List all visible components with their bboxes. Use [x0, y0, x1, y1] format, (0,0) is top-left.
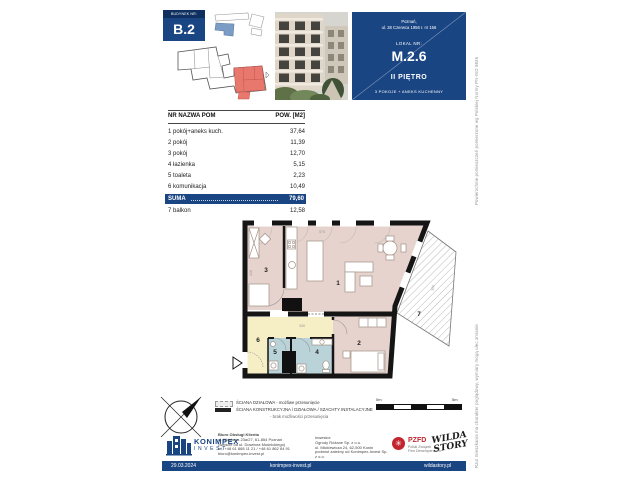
investor-block: Inwestor: Ogrody Różane Sp. z o.o. ul. M… [315, 436, 390, 460]
total-label: SUMA [168, 196, 186, 202]
office-email-link[interactable]: biuro@konimpex-invest.pl [218, 452, 308, 457]
scale-bar [376, 404, 462, 410]
total-value: 79,60 [289, 196, 304, 202]
office-contact-block: Biuro Obsługi Klienta ul. Mostowa 23a/27… [218, 433, 308, 457]
scale-segment [444, 405, 461, 409]
unit-info-box: Poznań, ul. 28 Czerwca 1956 r. nr 156 LO… [352, 12, 466, 100]
column-area: POW. [M2] [275, 113, 305, 119]
wilda-story-logo: WILDA STORY [429, 431, 471, 455]
developer-url-link[interactable]: konimpex-invest.pl [270, 463, 311, 469]
brochure-page: BUDYNEK NR: B.2 [0, 0, 640, 480]
kitchen-island [307, 241, 323, 281]
room-area: 10,49 [290, 184, 305, 190]
building-photo [275, 12, 348, 100]
room-name: 5 toaleta [168, 173, 191, 179]
table-row: 5 toaleta 2,23 [168, 173, 305, 184]
unit-type: 3 POKOJE + ANEKS KUCHENNY [352, 89, 466, 94]
dotted-leader [191, 200, 278, 201]
table-row: 3 pokój 12,70 [168, 151, 305, 162]
column-name: NR NAZWA POM [168, 113, 215, 119]
installation-shaft [282, 298, 302, 311]
room-name: 1 pokój+aneks kuch. [168, 129, 223, 135]
site-building-outline [215, 13, 249, 21]
dimension: 575 [319, 230, 325, 234]
table-row: 4 łazienka 5,15 [168, 162, 305, 173]
wardrobe-2 [359, 318, 386, 327]
site-building-highlighted [215, 23, 234, 36]
room-area: 2,23 [293, 173, 305, 179]
wardrobe [249, 228, 259, 258]
room-name: 7 balkon [168, 208, 191, 214]
room-area: 5,15 [293, 162, 305, 168]
kitchen-counter [286, 227, 297, 289]
legend-note-text: - brak możliwości przesunięcia [270, 414, 328, 419]
pzfd-logo-icon: ✳ [392, 437, 405, 450]
pzfd-name: PZFD [408, 437, 426, 444]
building-number: B.2 [163, 18, 205, 41]
city: Poznań, [352, 19, 466, 24]
project-url-link[interactable]: wildastory.pl [424, 463, 451, 469]
room-name: 6 komunikacja [168, 184, 206, 190]
orientation-marker [266, 72, 269, 78]
room-name: 4 łazienka [168, 162, 195, 168]
address: ul. 28 Czerwca 1956 r. nr 156 [352, 25, 466, 30]
legend-structural-text: ŚCIANA KONSTRUKCYJNA / DZIAŁOWA / SZACHT… [236, 407, 373, 412]
floor-label: II PIĘTRO [352, 74, 466, 81]
investor-line: podmiot zależny od Konimpex-Invest Sp. z… [315, 450, 390, 460]
site-building-outline [251, 28, 262, 36]
highlighted-unit-annex [238, 92, 250, 99]
table-row: 2 pokój 11,39 [168, 140, 305, 151]
entrance-marker [233, 357, 242, 369]
footer-bar: 29.03.2024 konimpex-invest.pl wildastory… [162, 461, 466, 471]
legend-symbol-structural [215, 408, 231, 412]
room-area: 11,39 [290, 140, 305, 146]
disclaimer-bottom: Rzut mieszkania ma charakter poglądowy, … [474, 228, 479, 468]
disclaimer-top: Powierzchnie pomieszczeń pomierzone wg P… [474, 30, 479, 205]
room-label-3: 3 [264, 267, 268, 274]
table-rule [168, 110, 305, 111]
floor-plan: 1 2 3 4 5 6 7 575 345 248 355 [162, 218, 464, 398]
room-label-4: 4 [315, 349, 319, 356]
table-row: 1 pokój+aneks kuch. 37,64 [168, 129, 305, 140]
scale-end-label: 5m [452, 397, 458, 402]
room-label-5: 5 [273, 349, 277, 356]
scale-start-label: 0m [376, 397, 382, 402]
scale-segment [377, 405, 394, 409]
room-label-6: 6 [256, 337, 260, 344]
dimension: 248 [249, 270, 253, 276]
room-area: 37,64 [290, 129, 305, 135]
date: 29.03.2024 [171, 463, 196, 469]
building-number-label: BUDYNEK NR: [163, 10, 205, 18]
table-rule [168, 123, 305, 124]
room-name: 2 pokój [168, 140, 187, 146]
entrance-opening [243, 352, 248, 368]
room-label-2: 2 [357, 340, 361, 347]
site-plan-thumbnail [212, 11, 268, 39]
room-name: 3 pokój [168, 151, 187, 157]
total-row: SUMA 79,60 [165, 194, 306, 204]
room-area: 12,58 [290, 208, 305, 214]
unit-number: M.2.6 [352, 48, 466, 64]
desk [249, 284, 269, 306]
site-building-outline [249, 14, 264, 28]
room-area: 12,70 [290, 151, 305, 157]
room-label-1: 1 [336, 280, 340, 287]
scale-segment [427, 405, 444, 409]
room-label-7: 7 [417, 311, 421, 318]
unit-number-label: LOKAL NR: [352, 41, 466, 46]
legend-symbol-partition [215, 401, 233, 407]
konimpex-logo-icon [166, 433, 192, 457]
scale-segment [411, 405, 428, 409]
dimension: 345 [299, 324, 305, 328]
legend-partition-text: ŚCIANA DZIAŁOWA - możliwe przesunięcie [236, 400, 320, 405]
floor-overview [170, 42, 270, 102]
installation-shaft [282, 351, 296, 373]
scale-segment [394, 405, 411, 409]
